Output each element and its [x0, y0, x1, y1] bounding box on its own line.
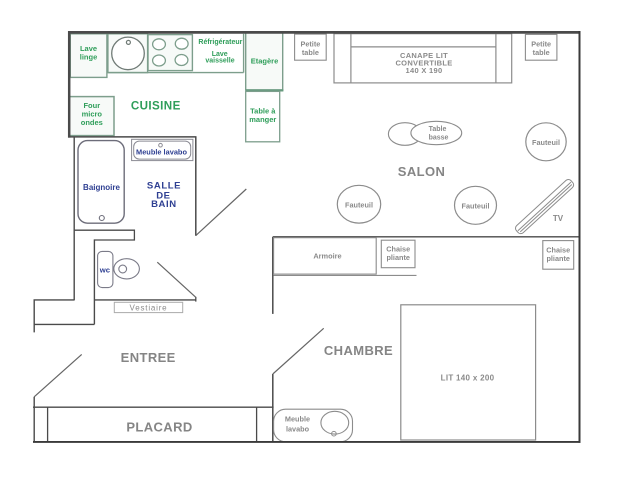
svg-text:linge: linge [80, 53, 98, 62]
svg-text:vaisselle: vaisselle [205, 57, 234, 64]
svg-text:pliante: pliante [386, 253, 410, 262]
svg-text:SALON: SALON [398, 164, 446, 179]
svg-text:Réfrigérateur: Réfrigérateur [198, 39, 242, 46]
svg-text:Meuble: Meuble [285, 415, 310, 424]
svg-text:table: table [533, 48, 550, 57]
svg-text:Vestiaire: Vestiaire [130, 304, 168, 313]
svg-text:Fauteuil: Fauteuil [345, 200, 373, 209]
svg-text:LIT 140 x 200: LIT 140 x 200 [441, 374, 495, 383]
svg-text:pliante: pliante [546, 254, 570, 263]
svg-text:TV: TV [553, 214, 564, 223]
svg-text:CHAMBRE: CHAMBRE [324, 343, 393, 358]
svg-text:CUISINE: CUISINE [131, 99, 181, 112]
svg-text:Armoire: Armoire [313, 252, 341, 261]
svg-text:manger: manger [249, 115, 276, 124]
svg-text:BAIN: BAIN [151, 199, 177, 210]
svg-text:Meuble lavabo: Meuble lavabo [136, 148, 187, 157]
svg-text:140 X 190: 140 X 190 [406, 66, 443, 75]
svg-text:Baignoire: Baignoire [83, 183, 120, 192]
svg-text:ENTREE: ENTREE [121, 350, 176, 365]
svg-text:basse: basse [429, 134, 449, 141]
svg-text:Fauteuil: Fauteuil [532, 138, 560, 147]
svg-text:PLACARD: PLACARD [126, 420, 192, 435]
svg-text:Etagère: Etagère [251, 56, 279, 65]
svg-text:lavabo: lavabo [286, 425, 310, 434]
svg-text:ondes: ondes [81, 118, 103, 127]
svg-text:wc: wc [99, 265, 111, 274]
svg-text:Table: Table [429, 126, 447, 133]
svg-text:table: table [302, 48, 319, 57]
svg-text:Fauteuil: Fauteuil [462, 201, 490, 210]
